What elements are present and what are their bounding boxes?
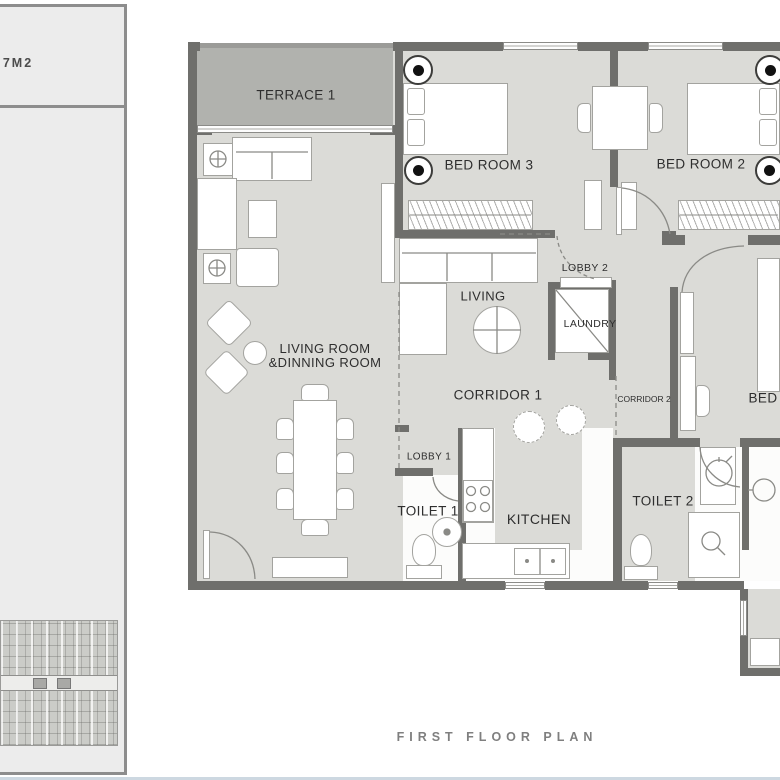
wc1-bowl-icon <box>412 534 436 566</box>
ceiling-fan-icon <box>404 156 433 185</box>
wardrobe2-icon <box>678 200 780 230</box>
small-round-table-icon <box>243 341 267 365</box>
desk-chair-icon <box>649 103 663 133</box>
lobby2-door-leaf <box>560 277 612 288</box>
wc2-bowl-icon <box>630 534 652 566</box>
stove-icon <box>463 480 493 522</box>
bar-stool-icon <box>556 405 586 435</box>
coffee-table-icon <box>248 200 277 238</box>
shower2-icon <box>688 512 740 578</box>
ceiling-fan-icon <box>755 156 780 185</box>
kitchen-sink-icon <box>514 548 566 575</box>
window-bedroom3 <box>503 42 578 50</box>
bedroom2-door-leaf <box>616 187 622 235</box>
terrace-top-edge <box>200 43 393 48</box>
wall-bottom-mid <box>545 581 648 590</box>
wall-bottom-left <box>188 581 505 590</box>
wall-toilet1-top <box>395 468 433 476</box>
room-label-bedroom2: BED ROOM 2 <box>657 157 746 172</box>
extension-fixture <box>750 638 780 666</box>
tv-sofa-side-icon <box>399 283 447 355</box>
floor-plan-page: 7M2 <box>0 0 780 780</box>
wall-under-bedroom3 <box>395 230 555 238</box>
dining-chair-icon <box>276 452 294 474</box>
dining-chair-icon <box>276 488 294 510</box>
dining-chair-icon <box>276 418 294 440</box>
room-label-laundry: LAUNDRY <box>564 318 617 330</box>
wardrobe3-icon <box>408 200 533 230</box>
sofa-left-icon <box>197 178 237 250</box>
sideboard-icon <box>272 557 348 578</box>
room-label-bedroom1: BED <box>749 391 778 406</box>
wall-shower-divider <box>742 447 749 550</box>
washbasin-icon <box>432 517 462 547</box>
desk1-chair-icon <box>696 385 710 417</box>
desk1-icon <box>680 356 696 431</box>
dining-chair-icon <box>301 384 329 401</box>
dining-chair-icon <box>336 488 354 510</box>
dining-chair-icon <box>301 519 329 536</box>
desk-chair-icon <box>577 103 591 133</box>
sofa-top-icon <box>232 137 312 181</box>
room-label-lobby1: LOBBY 1 <box>407 452 451 463</box>
wall-laundry-right <box>609 280 616 380</box>
terrace-railing <box>197 125 393 133</box>
wall-under-bedroom2-left <box>668 235 685 245</box>
side-table-2-icon <box>203 253 231 284</box>
wall-extension-bottom <box>740 668 780 676</box>
living-dining-line1: LIVING ROOM <box>279 341 370 356</box>
window-toilet2-bottom <box>648 582 678 589</box>
key-plan-core-right <box>57 678 71 689</box>
living-round-table-icon <box>473 306 521 354</box>
dining-table-icon <box>293 400 337 520</box>
wall-top-bedroom3-left <box>393 42 503 51</box>
armchair-icon <box>236 248 279 287</box>
key-plan-thumbnail <box>0 620 118 746</box>
window-bedroom2 <box>648 42 723 50</box>
room-label-living-dining: LIVING ROOM &DINNING ROOM <box>269 342 382 370</box>
dining-chair-icon <box>336 418 354 440</box>
room-label-corridor2: CORRIDOR 2 <box>617 394 670 404</box>
dresser3-icon <box>584 180 602 230</box>
room-label-bedroom3: BED ROOM 3 <box>445 158 534 173</box>
wall-toilet2-top-right <box>740 438 780 447</box>
vanity2-icon <box>700 447 736 505</box>
ceiling-fan-icon <box>755 55 780 85</box>
living-door-leaf <box>203 530 210 579</box>
window-extension <box>740 600 747 636</box>
living-dining-line2: &DINNING ROOM <box>269 355 382 370</box>
bar-stool-icon <box>513 411 545 443</box>
wall-toilet2-top-left <box>613 438 700 447</box>
wall-top-right <box>723 42 780 51</box>
wardrobe1-icon <box>680 292 694 354</box>
bed1-icon <box>757 258 780 392</box>
dining-chair-icon <box>336 452 354 474</box>
wall-kitchen-toilet2 <box>613 438 622 581</box>
wc2-tank <box>624 566 658 580</box>
desk-icon <box>592 86 648 150</box>
room-label-corridor1: CORRIDOR 1 <box>454 388 543 403</box>
kitchen-island-floor <box>495 428 582 550</box>
room-label-terrace1: TERRACE 1 <box>256 88 335 103</box>
wall-lobby1-stub <box>395 425 409 432</box>
wc1-tank <box>406 565 442 579</box>
wall-corridor2-right <box>670 287 678 440</box>
dresser2-icon <box>621 182 637 230</box>
ceiling-fan-icon <box>403 55 433 85</box>
window-kitchen-bottom <box>505 582 545 589</box>
tv-sofa-icon <box>399 238 538 283</box>
room-label-lobby2: LOBBY 2 <box>562 262 608 274</box>
bed3-pillow <box>407 88 425 115</box>
room-label-toilet1: TOILET 1 <box>397 504 458 519</box>
key-plan-core-left <box>33 678 47 689</box>
side-table-1-icon <box>203 143 233 176</box>
bed2-pillow <box>759 88 777 115</box>
room-label-toilet2: TOILET 2 <box>632 494 693 509</box>
wall-bedroom3-left <box>395 42 403 238</box>
room-label-living: LIVING <box>460 289 505 304</box>
wall-under-bedroom2-right <box>748 235 780 245</box>
room-label-kitchen: KITCHEN <box>507 511 571 527</box>
sidebar-area-label: 7M2 <box>3 56 33 70</box>
bed2-pillow <box>759 119 777 146</box>
wall-laundry-left <box>548 282 555 360</box>
wall-bottom-right <box>678 581 744 590</box>
plan-title: FIRST FLOOR PLAN <box>397 730 598 744</box>
tv-cabinet-icon <box>381 183 395 283</box>
bed3-pillow <box>407 119 425 146</box>
